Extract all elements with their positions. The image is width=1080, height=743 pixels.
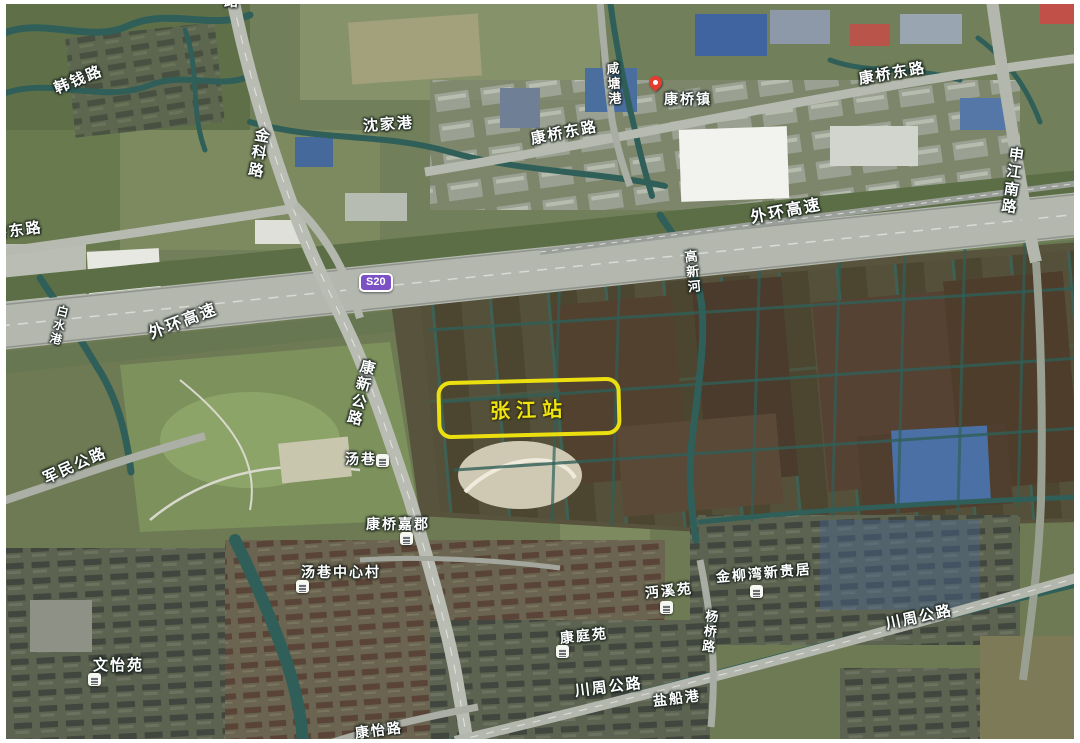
- map-label-top-edge-road-partial: 路: [224, 4, 240, 8]
- map-label-baishui-gang-river: 白水港: [48, 304, 70, 347]
- map-label-chuanzhou-hwy-bottom: 川周公路: [574, 676, 643, 699]
- map-screenshot-frame: 韩钱路路金科路沈家港桥东路康桥东路咸塘港康桥镇康桥东路申江南路外环高速高新河外环…: [0, 0, 1080, 743]
- labels-layer: 韩钱路路金科路沈家港桥东路康桥东路咸塘港康桥镇康桥东路申江南路外环高速高新河外环…: [6, 4, 1074, 739]
- map-label-gaoxin-river: 高新河: [684, 249, 702, 295]
- map-label-tangxiang: 汤巷: [345, 452, 377, 466]
- map-label-outer-ring-expwy-right: 外环高速: [749, 197, 823, 226]
- station-highlight-box: 张江站: [436, 377, 621, 440]
- map-label-outer-ring-expwy-left: 外环高速: [147, 302, 220, 343]
- map-label-shenjiagang-river: 沈家港: [362, 115, 414, 134]
- map-inner: 韩钱路路金科路沈家港桥东路康桥东路咸塘港康桥镇康桥东路申江南路外环高速高新河外环…: [6, 4, 1074, 739]
- map-label-kangyi-rd: 康怡路: [354, 720, 403, 739]
- poi-jinliuwan-building-icon: [750, 585, 763, 598]
- poi-kangqiao-jiajun-building-icon: [400, 532, 413, 545]
- map-label-hanqian-rd: 韩钱路: [52, 63, 105, 96]
- poi-tangxiang-center-building-icon: [296, 580, 309, 593]
- map-label-shenjiang-south-rd: 申江南路: [1000, 146, 1025, 217]
- map-label-kangqiao-jiajun: 康桥嘉郡: [366, 517, 430, 531]
- map-label-qiaodong-rd-left: 桥东路: [6, 220, 44, 242]
- poi-mianxi-garden-building-icon: [660, 601, 673, 614]
- map-label-xiantang-gang-river: 咸塘港: [606, 62, 623, 108]
- map-label-kangqiao-east-rd-mid: 康桥东路: [530, 119, 600, 147]
- map-label-kangxin-hwy: 康新公路: [346, 358, 378, 429]
- map-label-jinliuwan-xinguiju: 金柳湾新贵居: [715, 562, 812, 584]
- map-label-tangxiang-center-village: 汤巷中心村: [301, 565, 381, 579]
- map-label-mianxi-garden: 沔溪苑: [644, 581, 693, 600]
- station-label: 张江站: [490, 392, 569, 423]
- map-label-jinke-rd: 金科路: [247, 127, 271, 181]
- expressway-badge-s20: S20: [359, 273, 393, 292]
- poi-wenyi-garden-building-icon: [88, 673, 101, 686]
- map-canvas[interactable]: 韩钱路路金科路沈家港桥东路康桥东路咸塘港康桥镇康桥东路申江南路外环高速高新河外环…: [6, 4, 1074, 739]
- poi-tangxiang-building-icon: [376, 454, 389, 467]
- map-label-yangqiao-rd: 杨桥路: [701, 609, 719, 655]
- map-label-kangting-garden: 康庭苑: [559, 626, 608, 645]
- map-label-kangqiao-east-rd-right: 康桥东路: [858, 60, 928, 87]
- map-label-junmin-hwy: 军民公路: [41, 445, 109, 486]
- map-label-yanchuan-gang-river: 盐船港: [652, 688, 701, 708]
- poi-kangting-garden-building-icon: [556, 645, 569, 658]
- map-label-chuanzhou-hwy-right: 川周公路: [884, 603, 954, 632]
- map-label-wenyi-garden: 文怡苑: [93, 658, 144, 673]
- map-label-kangqiao-town: 康桥镇: [664, 92, 712, 106]
